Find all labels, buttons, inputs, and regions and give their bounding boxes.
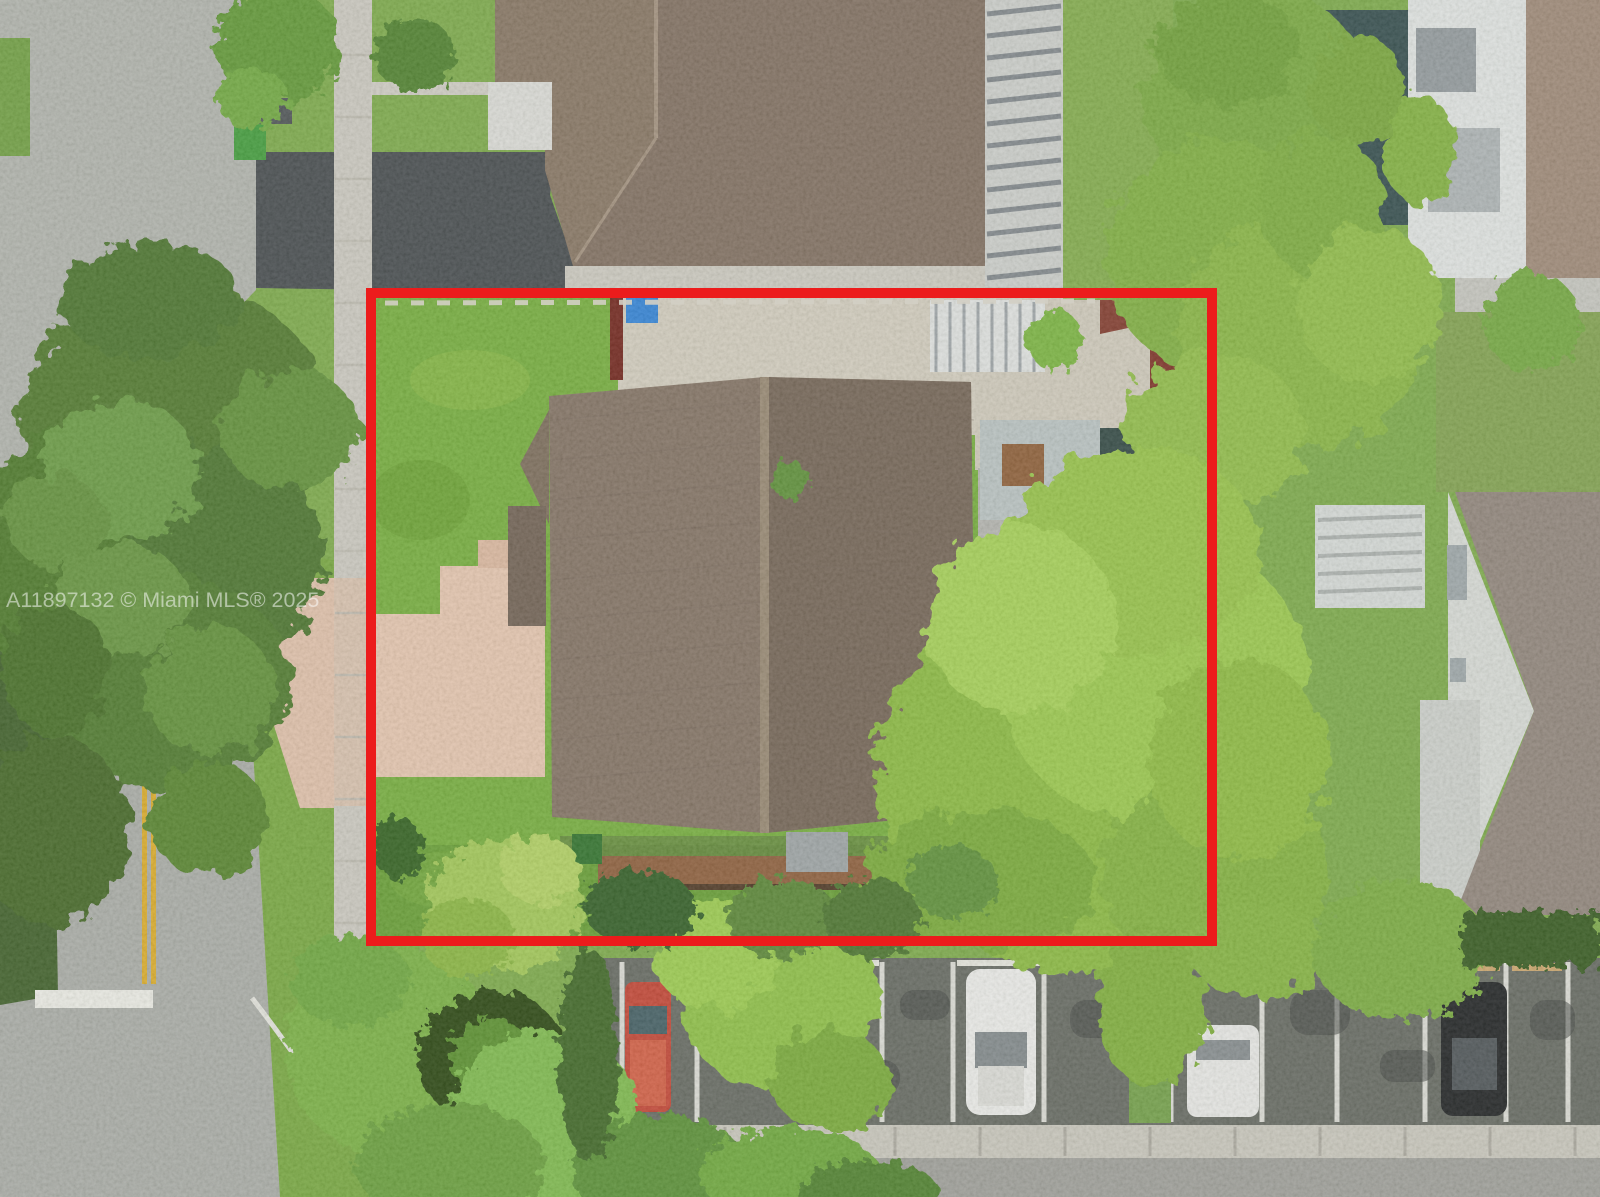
svg-text:A11897132 © Miami MLS® 2025: A11897132 © Miami MLS® 2025 (6, 588, 319, 612)
